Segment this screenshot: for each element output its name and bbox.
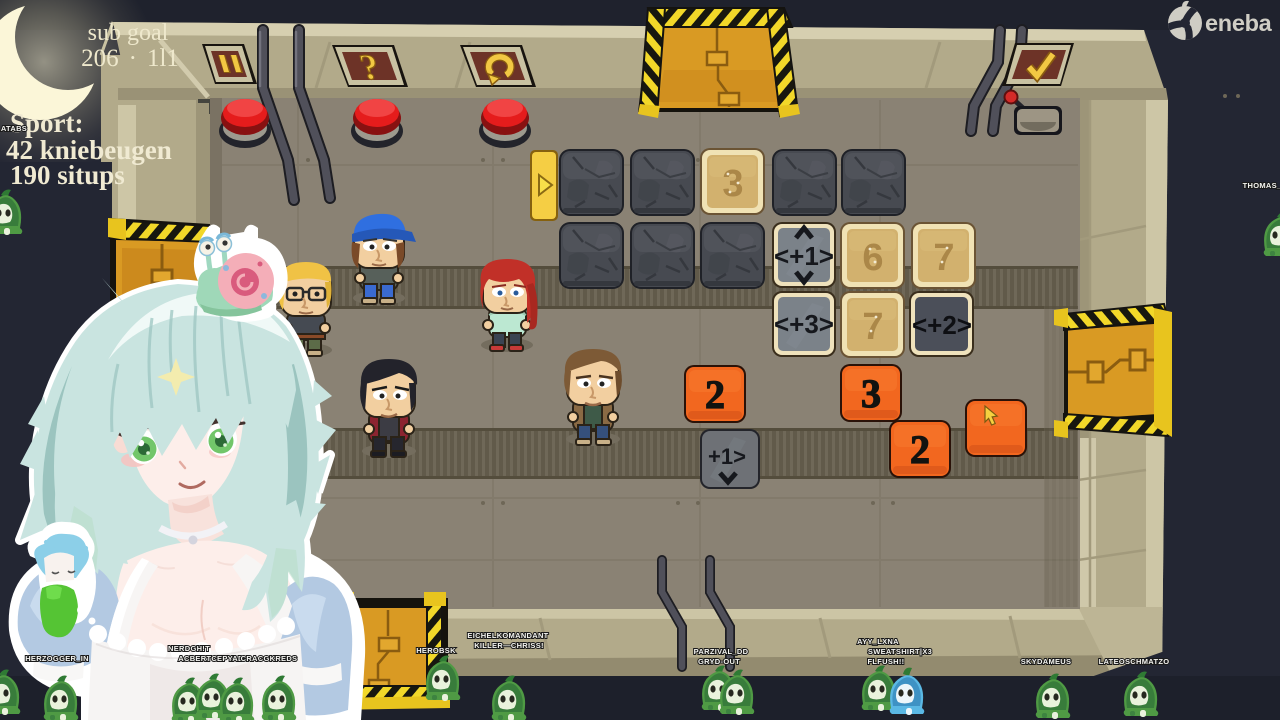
svg-text:+1>: +1> <box>708 444 746 469</box>
svg-text:<+2>: <+2> <box>912 310 972 340</box>
svg-text:2: 2 <box>910 427 930 472</box>
svg-text:KILLER—CHRISS!: KILLER—CHRISS! <box>474 641 544 650</box>
svg-text:CRACGKREDS: CRACGKREDS <box>241 654 298 663</box>
svg-text:PARZIVAL_DD: PARZIVAL_DD <box>694 647 749 656</box>
svg-text:LATEOSCHMATZO: LATEOSCHMATZO <box>1099 657 1170 666</box>
svg-text:7: 7 <box>933 237 954 279</box>
svg-text:FLFUSH!!: FLFUSH!! <box>868 657 905 666</box>
svg-text:SKYDAMEUS: SKYDAMEUS <box>1021 657 1072 666</box>
svg-text:sub goal: sub goal <box>88 20 169 46</box>
svg-text:2: 2 <box>705 372 725 417</box>
svg-text:190 situps: 190 situps <box>10 160 125 190</box>
svg-text:THOMAS_: THOMAS_ <box>1243 181 1280 190</box>
svg-text:<+3>: <+3> <box>774 309 834 339</box>
svg-text:EICHELKOMANDANT: EICHELKOMANDANT <box>467 631 548 640</box>
svg-text:3: 3 <box>722 163 743 205</box>
svg-text:GRYD-OUT: GRYD-OUT <box>698 657 740 666</box>
svg-text:Sport:: Sport: <box>10 108 84 138</box>
svg-text:7: 7 <box>862 306 883 348</box>
svg-text:206 · 1l1: 206 · 1l1 <box>81 45 179 72</box>
svg-text:eneba: eneba <box>1205 10 1273 36</box>
svg-text:ATABS: ATABS <box>1 124 27 133</box>
svg-text:HERZOGGER_IN: HERZOGGER_IN <box>25 654 89 663</box>
svg-text:AYY_LXNA: AYY_LXNA <box>857 637 899 646</box>
svg-text:HEROBSK: HEROBSK <box>416 646 456 655</box>
svg-text:3: 3 <box>861 371 881 416</box>
svg-text:SWEATSHIRT|X3: SWEATSHIRT|X3 <box>868 647 932 656</box>
svg-text:ACBERTCEPYAD: ACBERTCEPYAD <box>178 654 244 663</box>
svg-text:NERDGH!T: NERDGH!T <box>168 644 210 653</box>
svg-text:<+1>: <+1> <box>774 241 834 271</box>
svg-text:6: 6 <box>862 237 883 279</box>
